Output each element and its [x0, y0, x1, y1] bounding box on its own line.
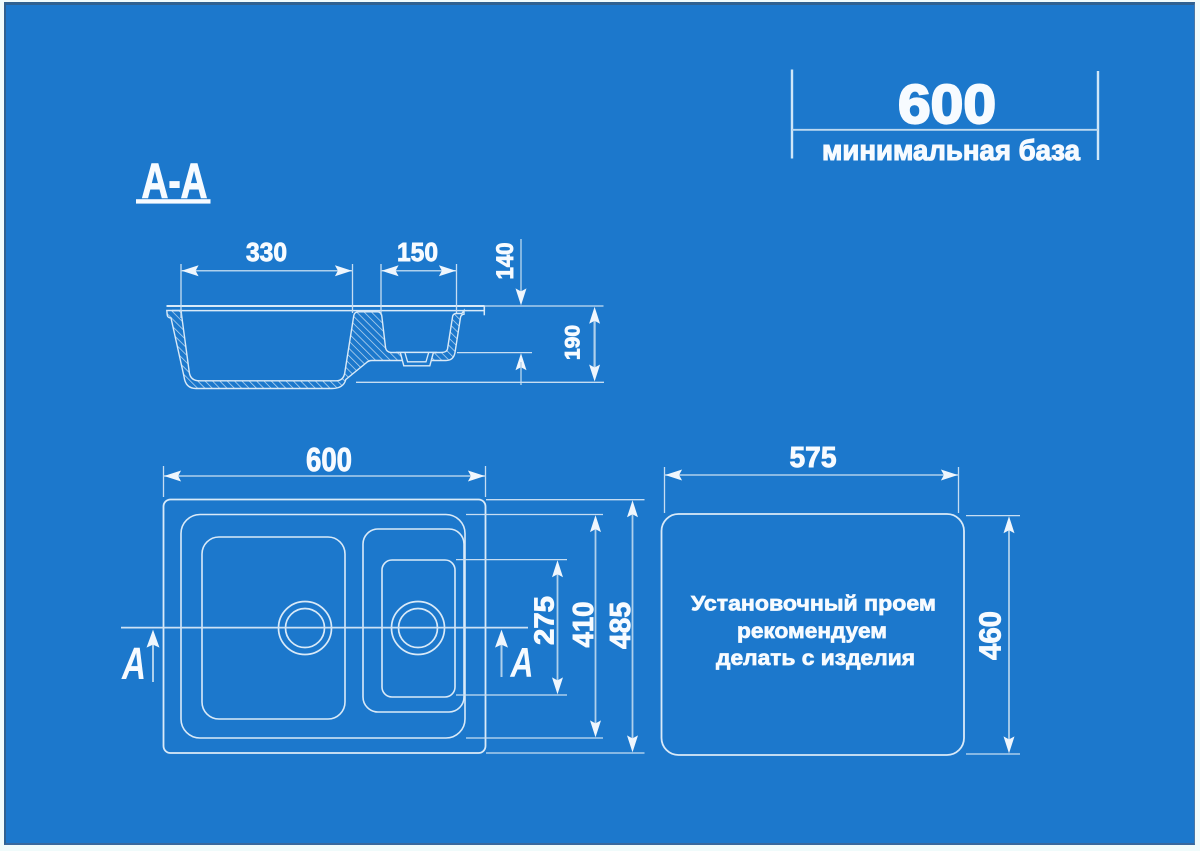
- svg-text:140: 140: [492, 243, 519, 280]
- svg-text:460: 460: [973, 611, 1008, 660]
- svg-text:A: A: [121, 638, 146, 689]
- svg-text:A: A: [510, 639, 534, 686]
- svg-text:минимальная база: минимальная база: [822, 135, 1081, 167]
- svg-text:600: 600: [898, 73, 996, 135]
- svg-text:делать с изделия: делать с изделия: [716, 647, 915, 670]
- svg-text:275: 275: [529, 596, 560, 645]
- svg-text:575: 575: [790, 442, 837, 474]
- svg-text:330: 330: [246, 237, 287, 267]
- svg-text:485: 485: [605, 602, 637, 649]
- svg-text:600: 600: [306, 441, 352, 478]
- svg-text:190: 190: [562, 325, 585, 360]
- svg-text:410: 410: [568, 602, 600, 648]
- svg-text:Установочный проем: Установочный проем: [691, 593, 936, 616]
- svg-text:150: 150: [397, 237, 438, 267]
- svg-text:рекомендуем: рекомендуем: [737, 620, 887, 643]
